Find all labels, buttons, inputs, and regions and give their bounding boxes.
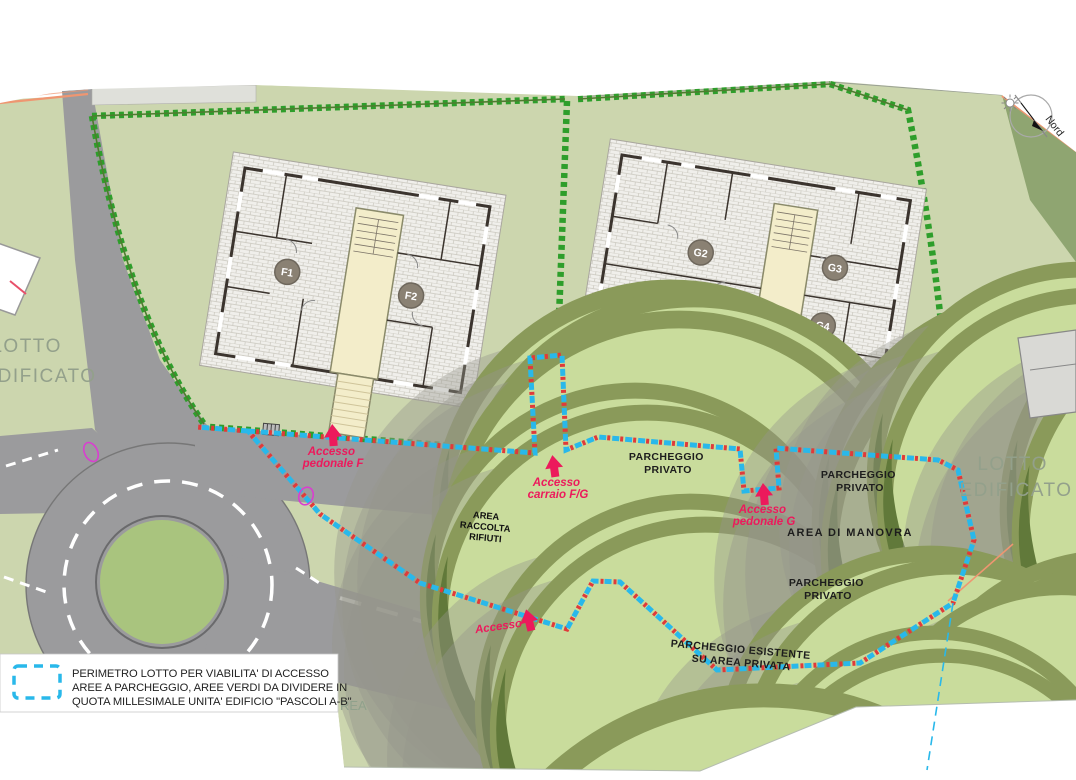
svg-text:Accesso pedonale G: Accesso pedonale G bbox=[732, 504, 796, 528]
legend-line-2: AREE A PARCHEGGIO, AREE VERDI DA DIVIDER… bbox=[72, 682, 347, 694]
svg-text:G2: G2 bbox=[693, 246, 709, 260]
sun-icon bbox=[1002, 95, 1019, 112]
svg-text:F1: F1 bbox=[280, 266, 294, 280]
site-plan-page: F1 F2 G2 G1 G3 bbox=[0, 0, 1076, 780]
svg-text:Accesso carraio F/G: Accesso carraio F/G bbox=[528, 477, 589, 501]
svg-text:F2: F2 bbox=[404, 290, 418, 304]
manoeuvre-area-label: AREA DI MANOVRA bbox=[787, 527, 913, 539]
svg-text:Accesso pedonale F: Accesso pedonale F bbox=[302, 446, 365, 470]
legend: PERIMETRO LOTTO PER VIABILITA' DI ACCESS… bbox=[0, 654, 352, 712]
site-plan-drawing: F1 F2 G2 G1 G3 bbox=[0, 0, 1076, 780]
roundabout-island bbox=[100, 520, 224, 644]
svg-text:G3: G3 bbox=[827, 262, 843, 276]
legend-line-3: QUOTA MILLESIMALE UNITA' EDIFICIO "PASCO… bbox=[72, 696, 352, 708]
legend-line-1: PERIMETRO LOTTO PER VIABILITA' DI ACCESS… bbox=[72, 668, 329, 680]
